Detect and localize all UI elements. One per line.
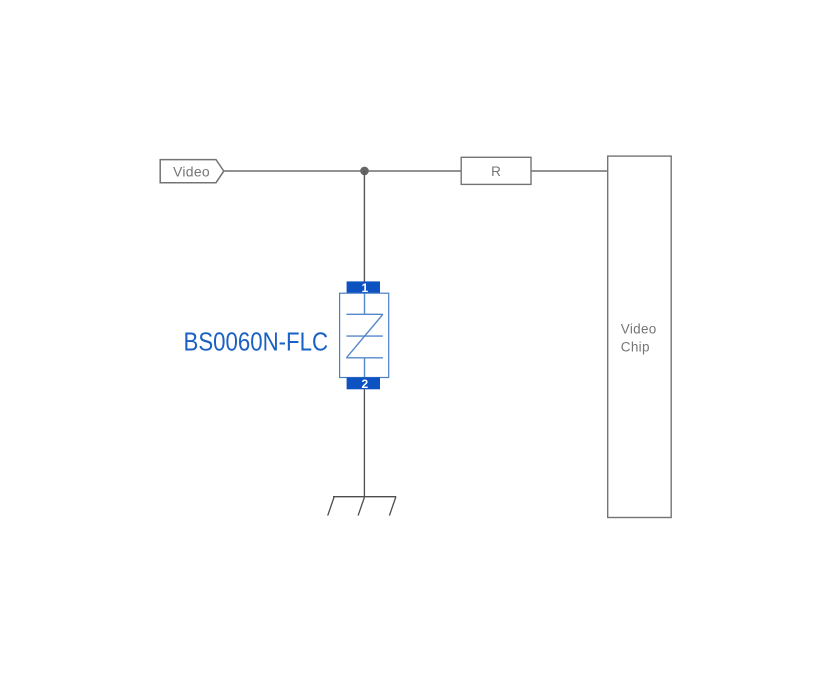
- svg-text:R: R: [491, 164, 501, 179]
- svg-text:BS0060N-FLC: BS0060N-FLC: [184, 327, 329, 357]
- svg-text:Video: Video: [173, 163, 210, 179]
- svg-text:2: 2: [361, 377, 368, 391]
- svg-text:Video: Video: [621, 322, 657, 337]
- svg-text:Chip: Chip: [621, 340, 650, 355]
